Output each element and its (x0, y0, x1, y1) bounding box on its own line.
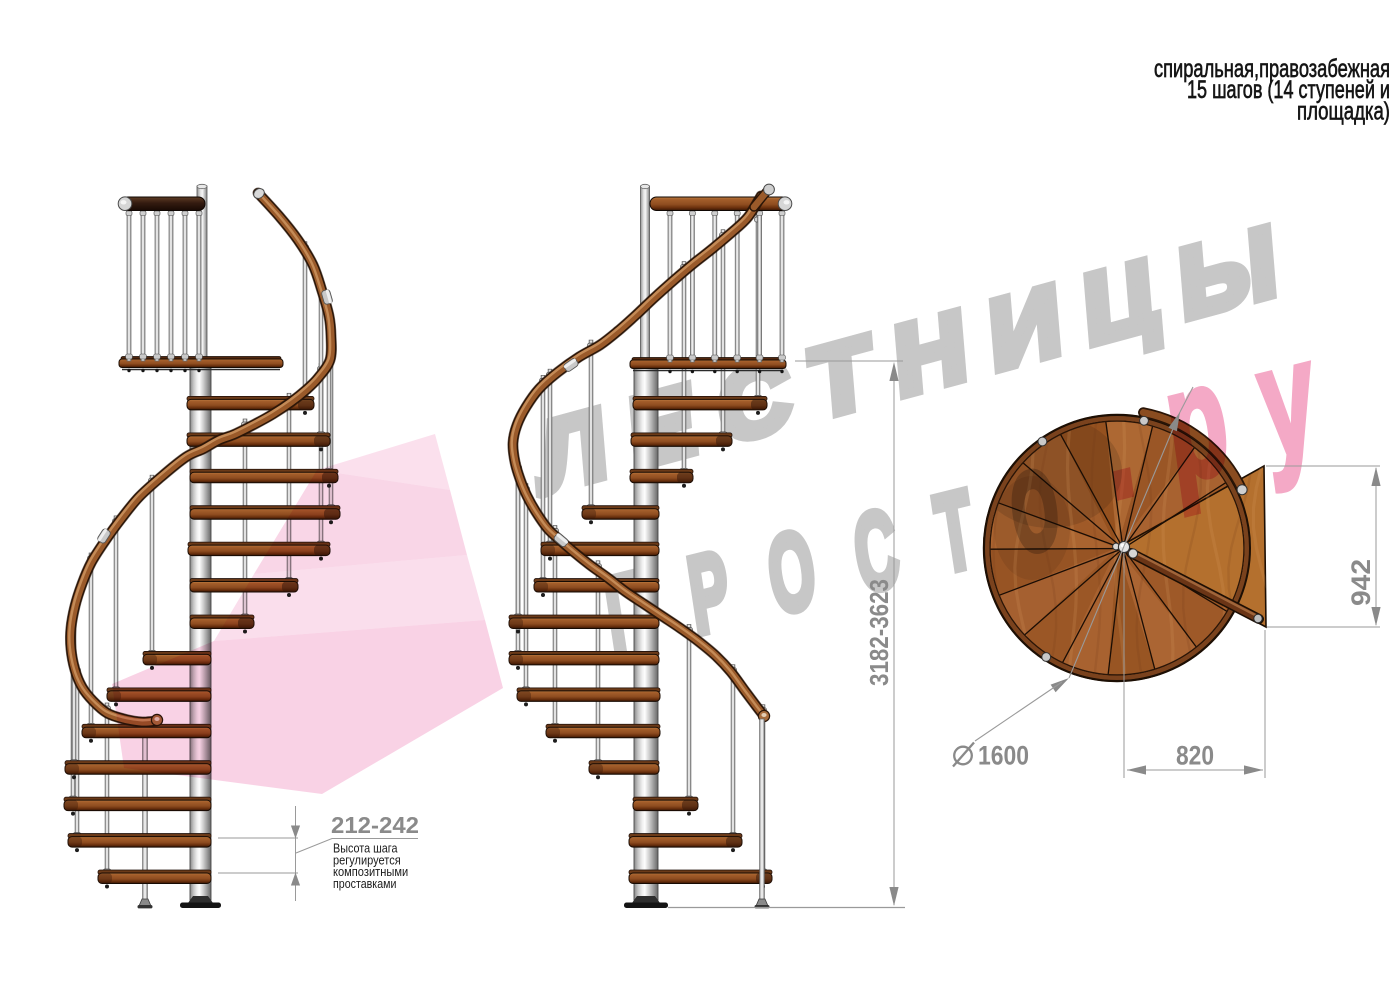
svg-text:площадка): площадка) (1297, 98, 1390, 126)
svg-text:212-242: 212-242 (331, 812, 419, 838)
svg-text:3182-3623: 3182-3623 (864, 579, 894, 686)
svg-text:проставками: проставками (333, 876, 396, 891)
svg-text:942: 942 (1346, 559, 1376, 606)
svg-text:1600: 1600 (978, 741, 1029, 771)
svg-text:820: 820 (1176, 741, 1214, 771)
